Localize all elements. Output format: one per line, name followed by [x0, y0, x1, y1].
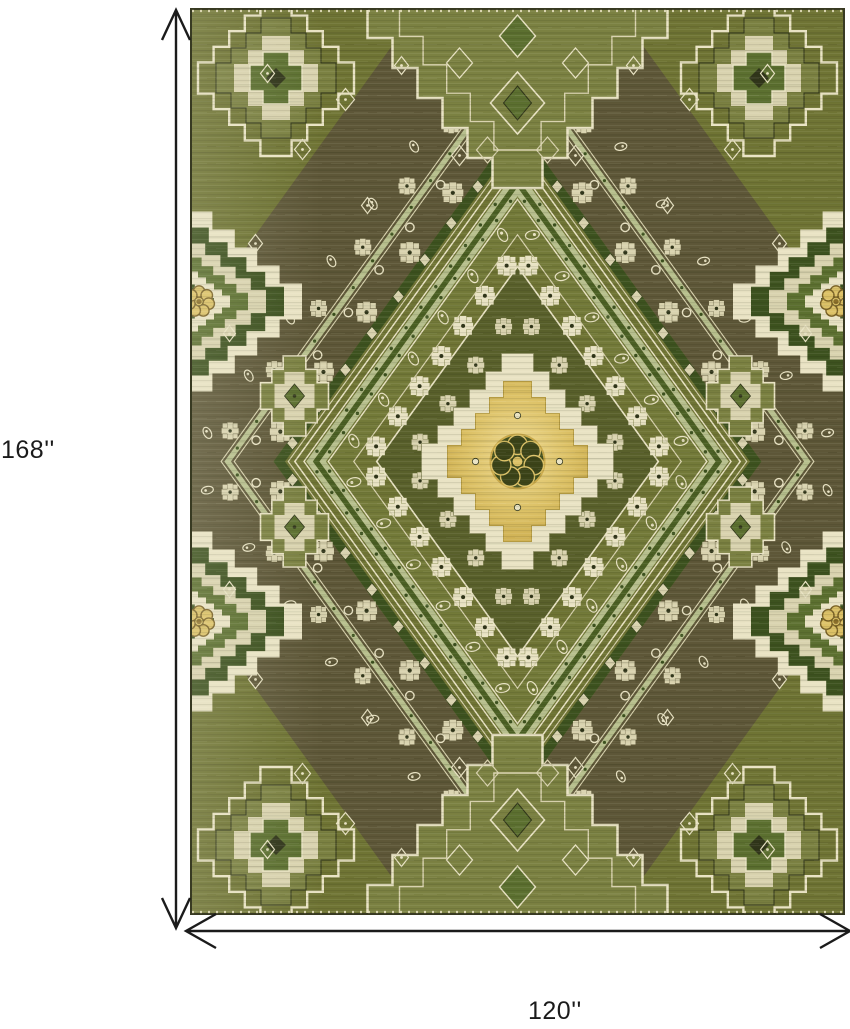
- height-arrow-line: [162, 10, 190, 928]
- rug-pattern: [190, 8, 845, 915]
- width-arrow-line: [186, 914, 850, 948]
- width-arrow: [178, 910, 850, 950]
- height-dimension-label: 168'': [1, 438, 55, 463]
- height-arrow: [158, 2, 194, 936]
- width-dimension-label: 120'': [528, 999, 582, 1024]
- diagram-canvas: 168'' 120'': [0, 0, 850, 1029]
- rug-image: [190, 8, 845, 915]
